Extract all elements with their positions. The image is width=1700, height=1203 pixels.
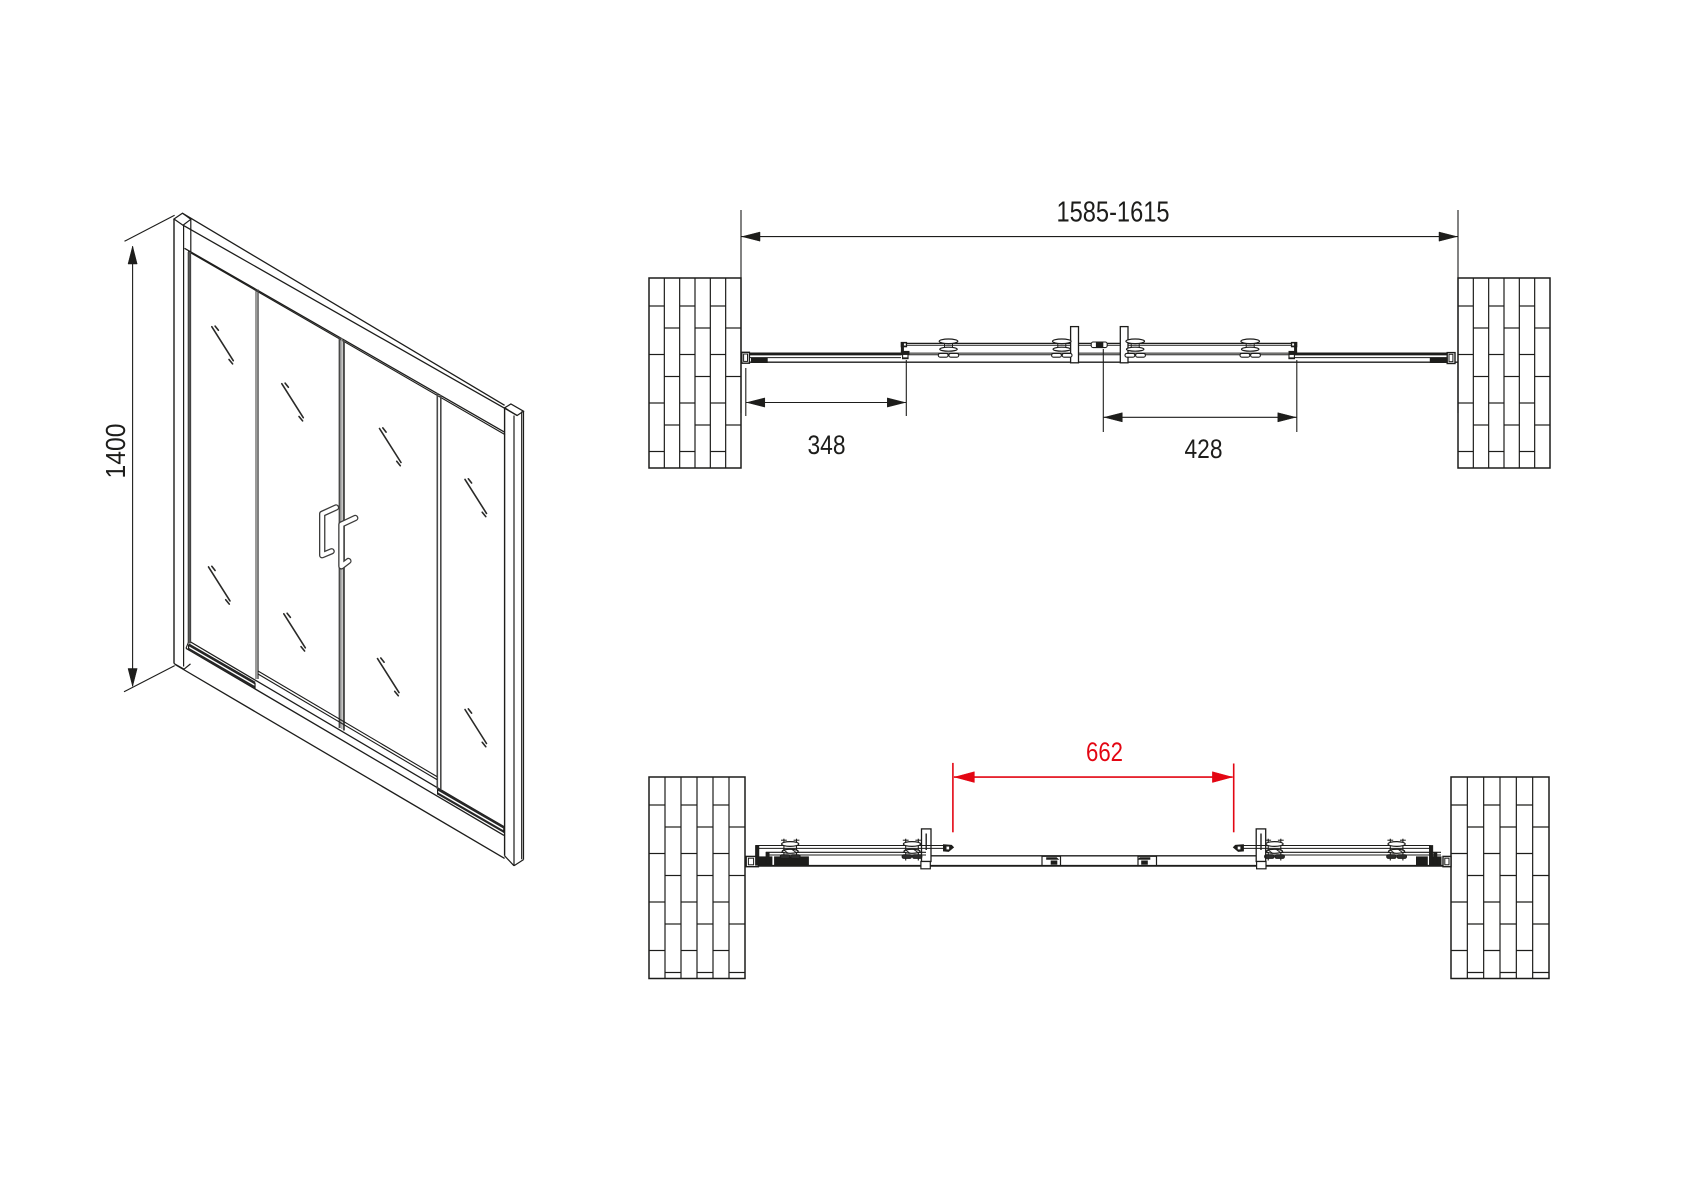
svg-text:1585-1615: 1585-1615 [1057,197,1170,229]
svg-text:348: 348 [808,430,846,460]
svg-text:1400: 1400 [100,424,131,479]
svg-text:428: 428 [1185,434,1223,464]
svg-text:662: 662 [1086,737,1123,767]
